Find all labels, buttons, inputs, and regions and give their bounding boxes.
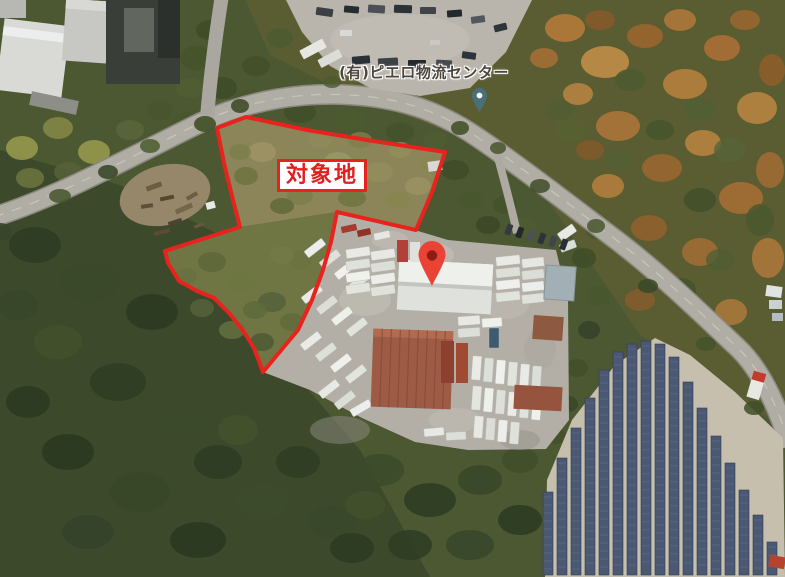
target-site-label: 対象地 [277, 159, 367, 192]
poi-label[interactable]: (有)ピエロ物流センター [339, 62, 509, 83]
poi-pin-icon[interactable] [472, 88, 487, 113]
satellite-map[interactable]: (有)ピエロ物流センター 対象地 [0, 0, 785, 577]
annotation-overlay [0, 0, 785, 577]
location-pin-icon[interactable] [419, 241, 446, 286]
site-boundary-outline [165, 117, 445, 372]
